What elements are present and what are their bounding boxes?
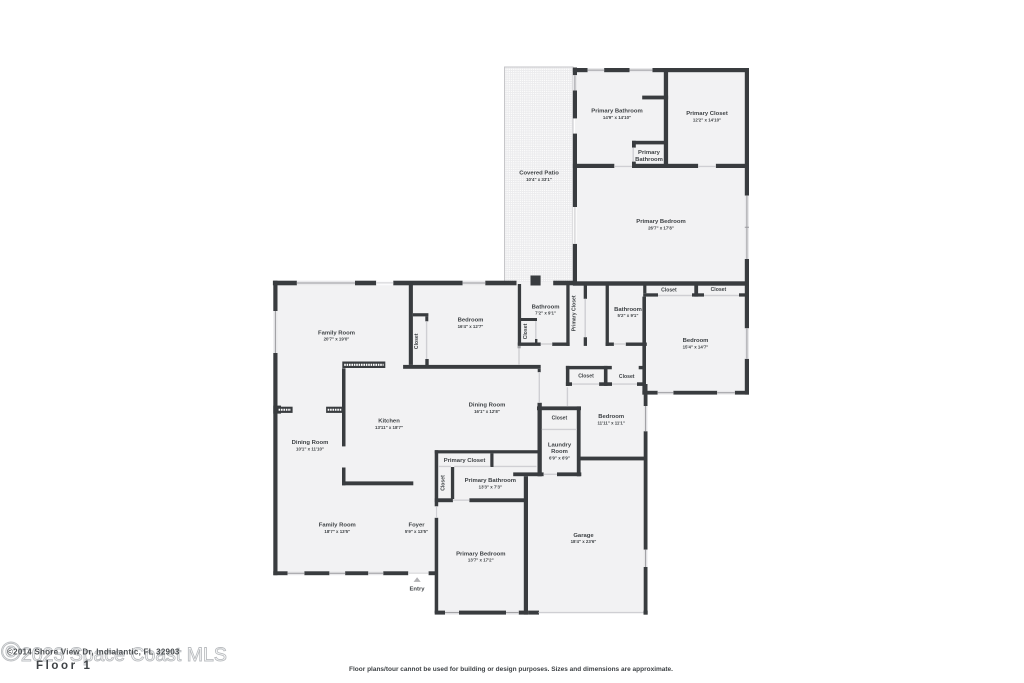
svg-text:Bedroom: Bedroom <box>598 414 624 420</box>
svg-text:13'11" x 18'7": 13'11" x 18'7" <box>375 425 403 430</box>
svg-text:Primary Closet: Primary Closet <box>444 458 486 464</box>
svg-text:10'1" x 11'10": 10'1" x 11'10" <box>296 446 324 451</box>
svg-text:11'11" x 11'1": 11'11" x 11'1" <box>597 420 625 425</box>
svg-text:Bedroom: Bedroom <box>683 338 709 344</box>
svg-text:5'9" x 13'5": 5'9" x 13'5" <box>405 529 428 534</box>
svg-text:10'4" x 33'1": 10'4" x 33'1" <box>526 177 552 182</box>
svg-text:Foyer: Foyer <box>408 523 425 529</box>
svg-text:6'9" x 6'9": 6'9" x 6'9" <box>549 456 570 461</box>
svg-text:Closet: Closet <box>619 374 635 380</box>
svg-text:13'3" x 7'3": 13'3" x 7'3" <box>479 485 502 490</box>
svg-text:Closet: Closet <box>661 288 677 294</box>
svg-text:18'4" x 23'6": 18'4" x 23'6" <box>571 539 597 544</box>
svg-text:15'4" x 14'7": 15'4" x 14'7" <box>683 344 709 349</box>
svg-text:Bedroom: Bedroom <box>458 317 484 323</box>
svg-text:18'7" x 13'5": 18'7" x 13'5" <box>324 529 350 534</box>
svg-text:Primary Bathroom: Primary Bathroom <box>591 108 642 114</box>
svg-text:Family Room: Family Room <box>318 330 355 336</box>
svg-text:Primary Bedroom: Primary Bedroom <box>636 219 685 225</box>
svg-text:Closet: Closet <box>441 475 447 491</box>
svg-text:Floor plans/tour cannot be use: Floor plans/tour cannot be used for buil… <box>349 666 673 673</box>
svg-text:Kitchen: Kitchen <box>378 419 400 425</box>
svg-text:Room: Room <box>551 449 568 455</box>
svg-text:Dining Room: Dining Room <box>469 403 506 409</box>
svg-text:Closet: Closet <box>523 323 529 339</box>
svg-text:13'7" x 17'2": 13'7" x 17'2" <box>468 557 494 562</box>
svg-text:Bathroom: Bathroom <box>635 157 663 163</box>
svg-text:5'2" x 9'1": 5'2" x 9'1" <box>618 313 639 318</box>
svg-text:14'9" x 14'10": 14'9" x 14'10" <box>603 115 631 120</box>
svg-text:Primary Closet: Primary Closet <box>571 295 577 331</box>
svg-text:Closet: Closet <box>711 287 727 293</box>
svg-text:Closet: Closet <box>552 416 568 422</box>
svg-text:7'2" x 9'1": 7'2" x 9'1" <box>535 310 556 315</box>
svg-text:16'1" x 12'8": 16'1" x 12'8" <box>474 409 500 414</box>
svg-text:Entry: Entry <box>409 587 425 593</box>
svg-text:20'7" x 19'0": 20'7" x 19'0" <box>324 337 350 342</box>
svg-text:Closet: Closet <box>414 333 420 349</box>
svg-text:Dining Room: Dining Room <box>292 440 329 446</box>
svg-text:Laundry: Laundry <box>548 443 572 449</box>
svg-text:12'2" x 14'10": 12'2" x 14'10" <box>693 117 721 122</box>
svg-text:Primary: Primary <box>638 150 661 156</box>
svg-text:Primary Closet: Primary Closet <box>686 111 728 117</box>
svg-text:26'7" x 17'8": 26'7" x 17'8" <box>648 226 674 231</box>
svg-text:Primary Bathroom: Primary Bathroom <box>465 478 516 484</box>
svg-text:16'4" x 12'7": 16'4" x 12'7" <box>458 324 484 329</box>
svg-text:Family Room: Family Room <box>319 523 356 529</box>
svg-text:©2014 Shore View Dr, Indialant: ©2014 Shore View Dr, Indialantic, FL 329… <box>7 648 180 657</box>
svg-text:Floor 1: Floor 1 <box>36 660 93 672</box>
svg-text:Covered Patio: Covered Patio <box>519 171 559 177</box>
svg-text:Closet: Closet <box>578 374 594 380</box>
